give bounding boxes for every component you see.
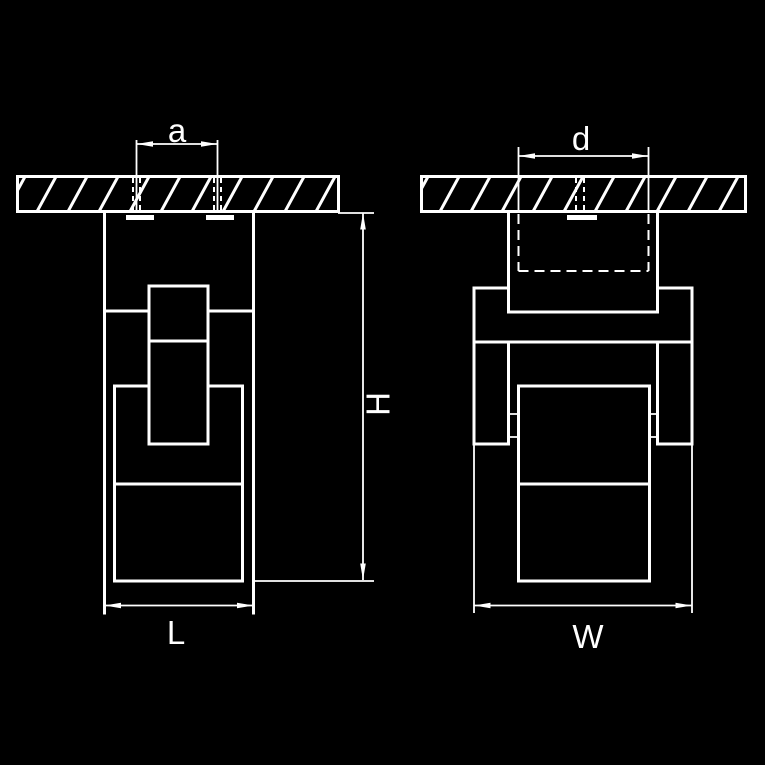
- dimension-label-w: W: [572, 618, 604, 655]
- drawing-canvas: a L H: [0, 0, 765, 765]
- dimension-label-d: d: [572, 120, 590, 157]
- canvas-background: [0, 0, 765, 765]
- ceiling-panel-front: [18, 177, 339, 212]
- dimension-label-h: H: [360, 392, 397, 416]
- dimension-label-l: L: [167, 614, 185, 651]
- dimension-label-a: a: [168, 112, 187, 149]
- fixture-dimension-drawing: a L H: [0, 0, 765, 765]
